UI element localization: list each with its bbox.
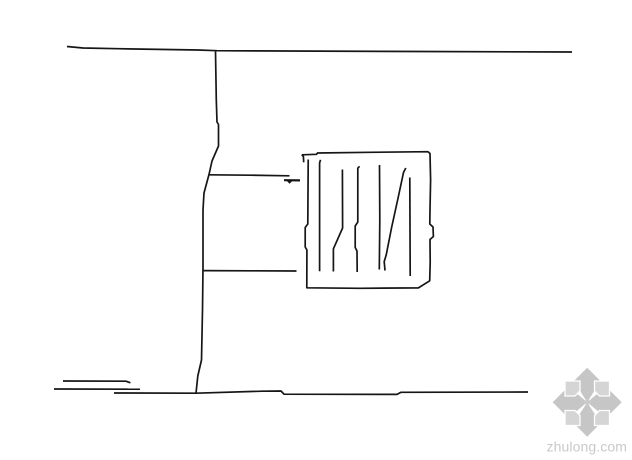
svg-text:zhulong.com: zhulong.com (547, 439, 627, 455)
